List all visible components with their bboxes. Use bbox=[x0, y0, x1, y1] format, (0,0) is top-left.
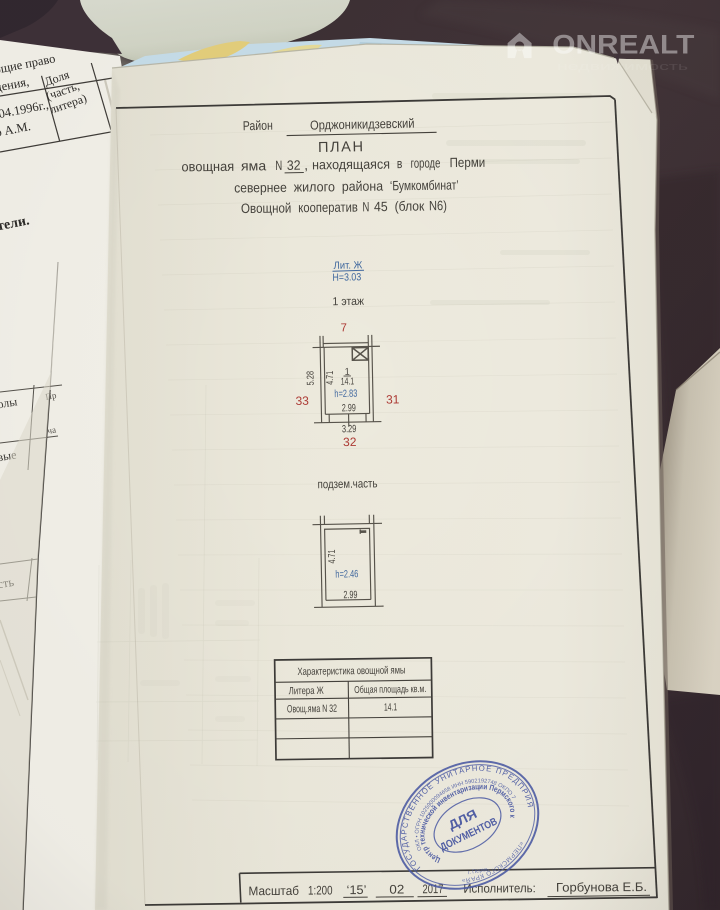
svg-text:недвижимость: недвижимость bbox=[557, 61, 688, 73]
svg-text:ONREALT: ONREALT bbox=[552, 29, 694, 59]
